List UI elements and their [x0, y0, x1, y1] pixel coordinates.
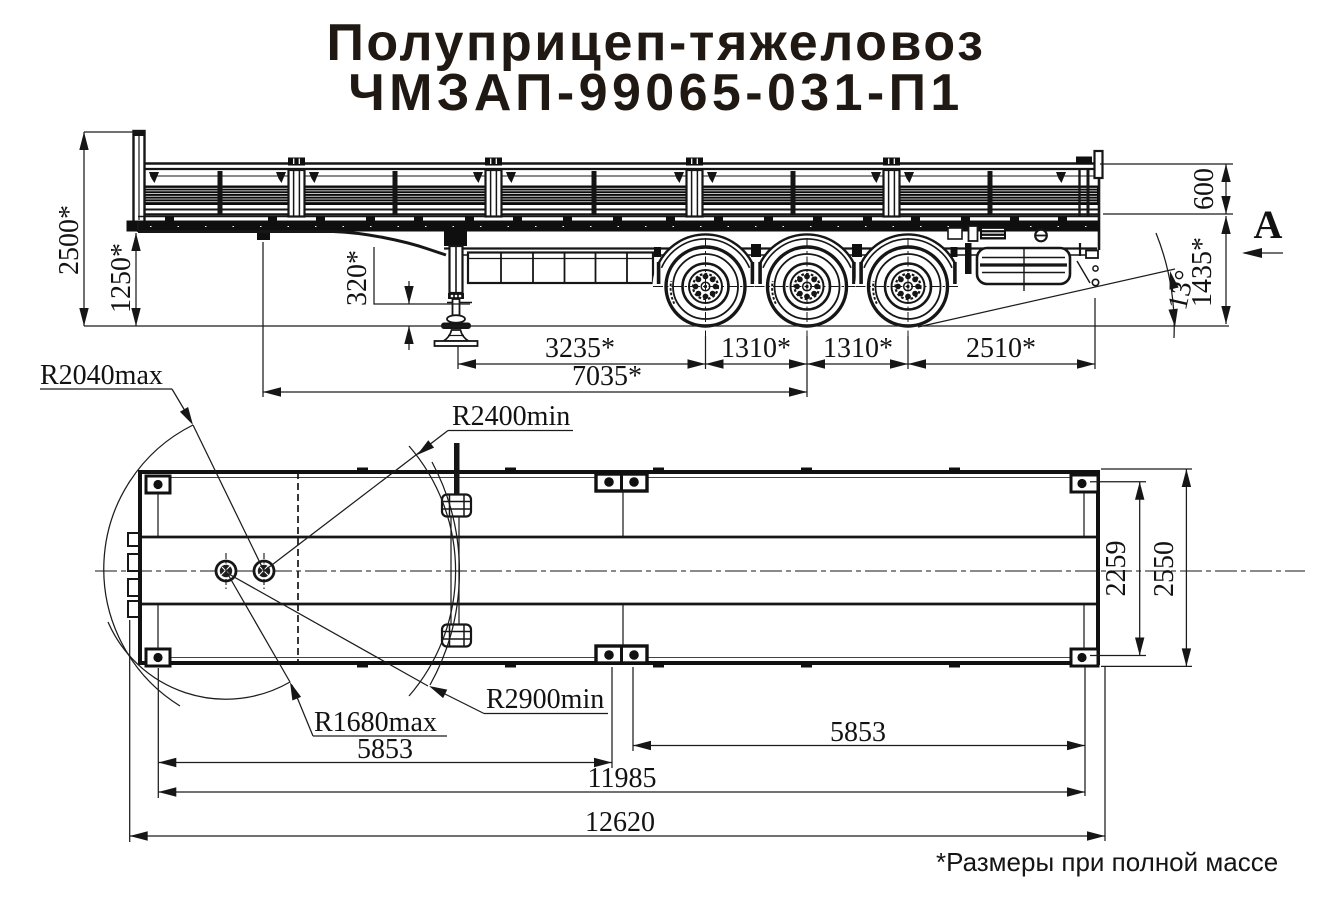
svg-text:R2400min: R2400min [452, 401, 570, 432]
svg-text:2500*: 2500* [54, 205, 85, 275]
svg-text:12620: 12620 [585, 807, 655, 838]
svg-text:320*: 320* [342, 250, 373, 306]
svg-text:A: A [1254, 202, 1283, 247]
svg-text:2259: 2259 [1101, 541, 1132, 597]
svg-text:11985: 11985 [588, 763, 657, 794]
svg-text:R2040max: R2040max [40, 360, 163, 391]
svg-text:2550: 2550 [1149, 541, 1180, 597]
svg-text:R2900min: R2900min [486, 684, 604, 715]
svg-text:600: 600 [1189, 168, 1220, 210]
svg-text:*Размеры при полной массе: *Размеры при полной массе [936, 847, 1278, 877]
svg-text:1310*: 1310* [721, 333, 791, 364]
svg-text:5853: 5853 [357, 734, 413, 765]
svg-text:1250*: 1250* [106, 243, 137, 313]
svg-text:ЧМЗАП-99065-031-П1: ЧМЗАП-99065-031-П1 [348, 64, 963, 122]
svg-text:3235*: 3235* [545, 333, 615, 364]
svg-text:1310*: 1310* [823, 333, 893, 364]
svg-text:2510*: 2510* [966, 333, 1036, 364]
svg-text:5853: 5853 [830, 717, 886, 748]
svg-text:7035*: 7035* [572, 361, 642, 392]
